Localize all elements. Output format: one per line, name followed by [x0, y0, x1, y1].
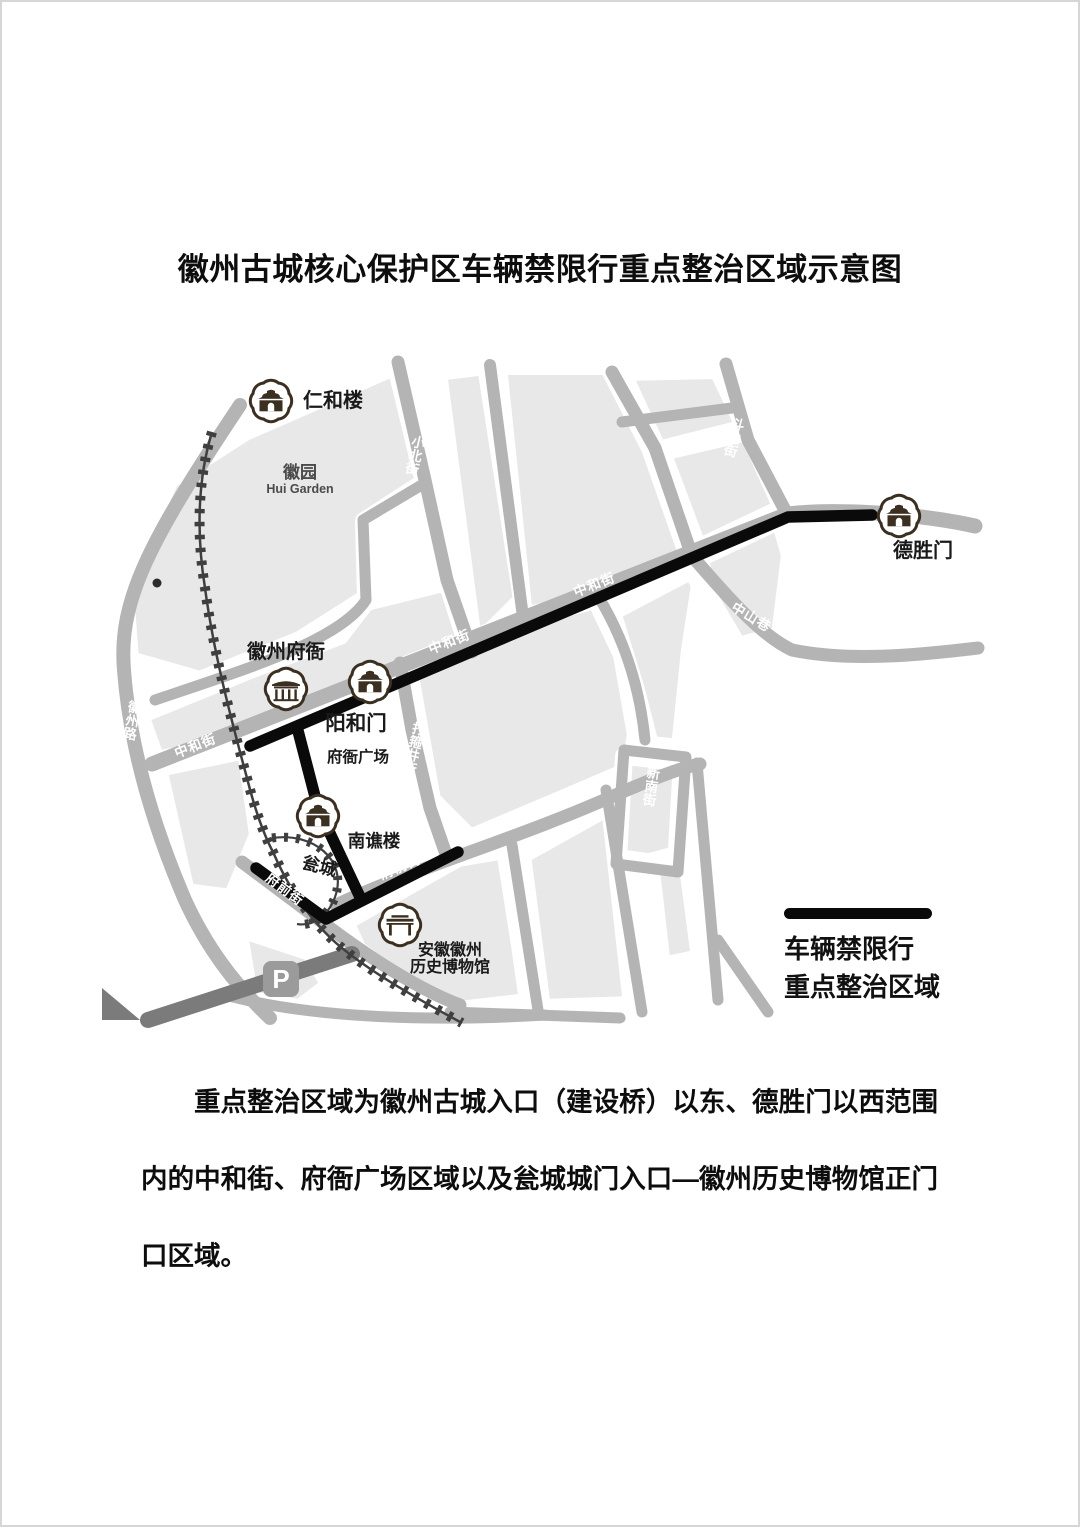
label-renhelou: 仁和楼: [303, 388, 363, 412]
caption-paragraph: 重点整治区域为徽州古城入口（建设桥）以东、德胜门以西范围内的中和街、府衙广场区域…: [141, 1064, 938, 1295]
label-museum-line2: 历史博物馆: [410, 957, 490, 976]
road-bottom-connector: [450, 1012, 620, 1018]
legend-label-line1: 车辆禁限行: [784, 930, 1004, 968]
label-yanghemen: 阳和门: [325, 711, 387, 735]
label-museum-line1: 安徽徽州: [418, 940, 482, 959]
svg-text:P: P: [272, 964, 289, 994]
road-south-v4: [718, 940, 768, 1012]
label-wengcheng: 瓮城: [300, 852, 339, 880]
parking-icon: P: [263, 961, 299, 997]
label-huizhoufuya: 徽州府衙: [246, 640, 326, 663]
schematic-map: 中和街 中和街 中和街 徽州路 小北街 打箍井街 斗山街 新南街 中山巷 府前街…: [0, 0, 1080, 1527]
label-huiyuan: 徽园: [282, 462, 317, 482]
legend-label-line2: 重点整治区域: [784, 968, 1004, 1006]
label-deshengmen: 德胜门: [893, 538, 953, 562]
label-nanqiaolou: 南谯楼: [348, 831, 401, 851]
legend: 车辆禁限行 重点整治区域: [784, 908, 1004, 1006]
label-huiyuan-en: Hui Garden: [266, 482, 333, 496]
legend-restricted-line-swatch: [784, 908, 932, 919]
block-museum: [345, 850, 528, 1010]
legend-text: 车辆禁限行 重点整治区域: [784, 930, 1004, 1006]
deshengmen-gate-icon: [876, 493, 923, 540]
notice-page: 徽州古城核心保护区车辆禁限行重点整治区域示意图: [0, 0, 1080, 1527]
label-fuyaguangchang: 府衙广场: [327, 747, 389, 766]
map-dot: [153, 579, 162, 588]
